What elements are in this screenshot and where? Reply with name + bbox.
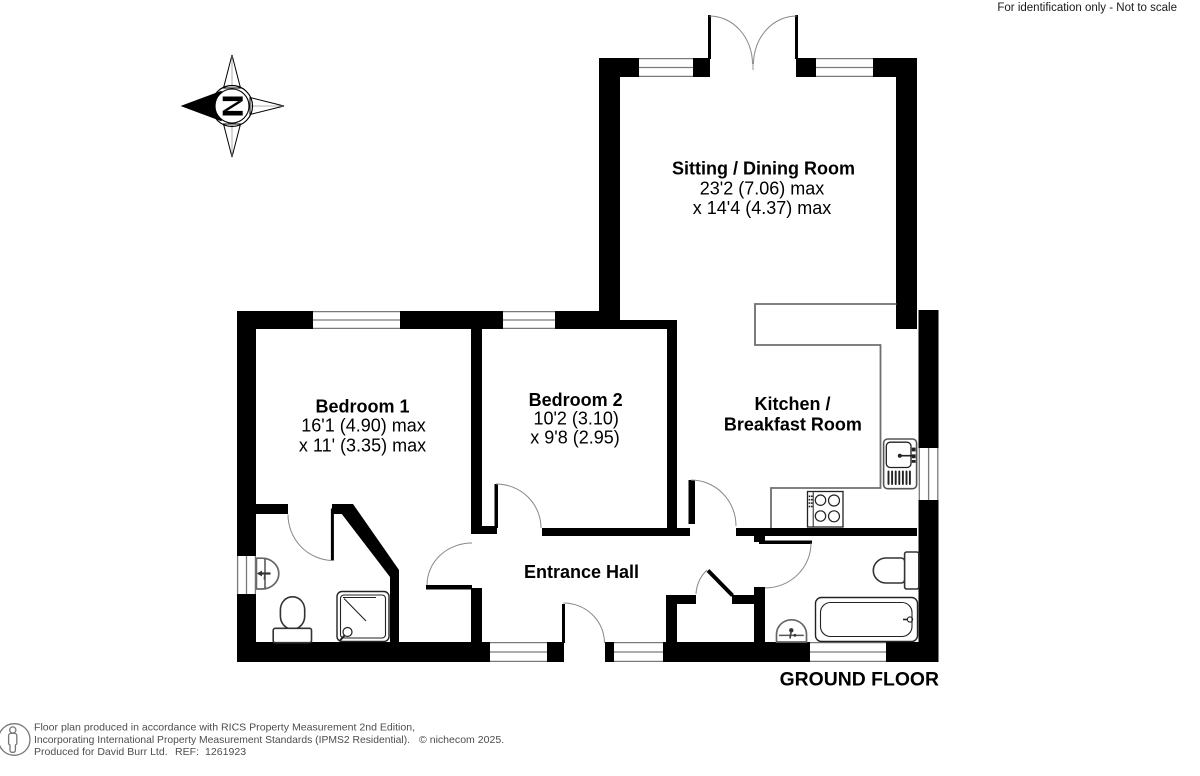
svg-text:Breakfast Room: Breakfast Room (724, 414, 862, 434)
svg-text:© nichecom 2025.: © nichecom 2025. (419, 734, 504, 746)
svg-text:For identification only - Not: For identification only - Not to scale (997, 2, 1177, 14)
svg-text:1261923: 1261923 (205, 746, 246, 758)
svg-text:Bedroom 2: Bedroom 2 (529, 390, 623, 410)
svg-text:Bedroom 1: Bedroom 1 (315, 397, 409, 417)
svg-text:Kitchen /: Kitchen / (754, 394, 830, 414)
svg-text:x 14'4 (4.37) max: x 14'4 (4.37) max (693, 198, 832, 218)
svg-text:23'2 (7.06) max: 23'2 (7.06) max (700, 179, 825, 199)
svg-text:Floor plan produced in accorda: Floor plan produced in accordance with R… (34, 722, 415, 734)
svg-text:GROUND FLOOR: GROUND FLOOR (780, 668, 939, 690)
svg-text:Sitting / Dining Room: Sitting / Dining Room (672, 159, 855, 179)
svg-text:REF:: REF: (175, 746, 199, 758)
svg-text:16'1 (4.90) max: 16'1 (4.90) max (301, 416, 426, 436)
svg-text:x 11' (3.35) max: x 11' (3.35) max (299, 435, 426, 455)
svg-text:10'2 (3.10): 10'2 (3.10) (533, 409, 619, 429)
svg-text:Produced for David Burr Ltd.: Produced for David Burr Ltd. (34, 746, 168, 758)
svg-text:x 9'8 (2.95): x 9'8 (2.95) (530, 428, 619, 448)
svg-text:Entrance Hall: Entrance Hall (524, 562, 639, 582)
svg-text:Incorporating International Pr: Incorporating International Property Mea… (34, 735, 410, 746)
